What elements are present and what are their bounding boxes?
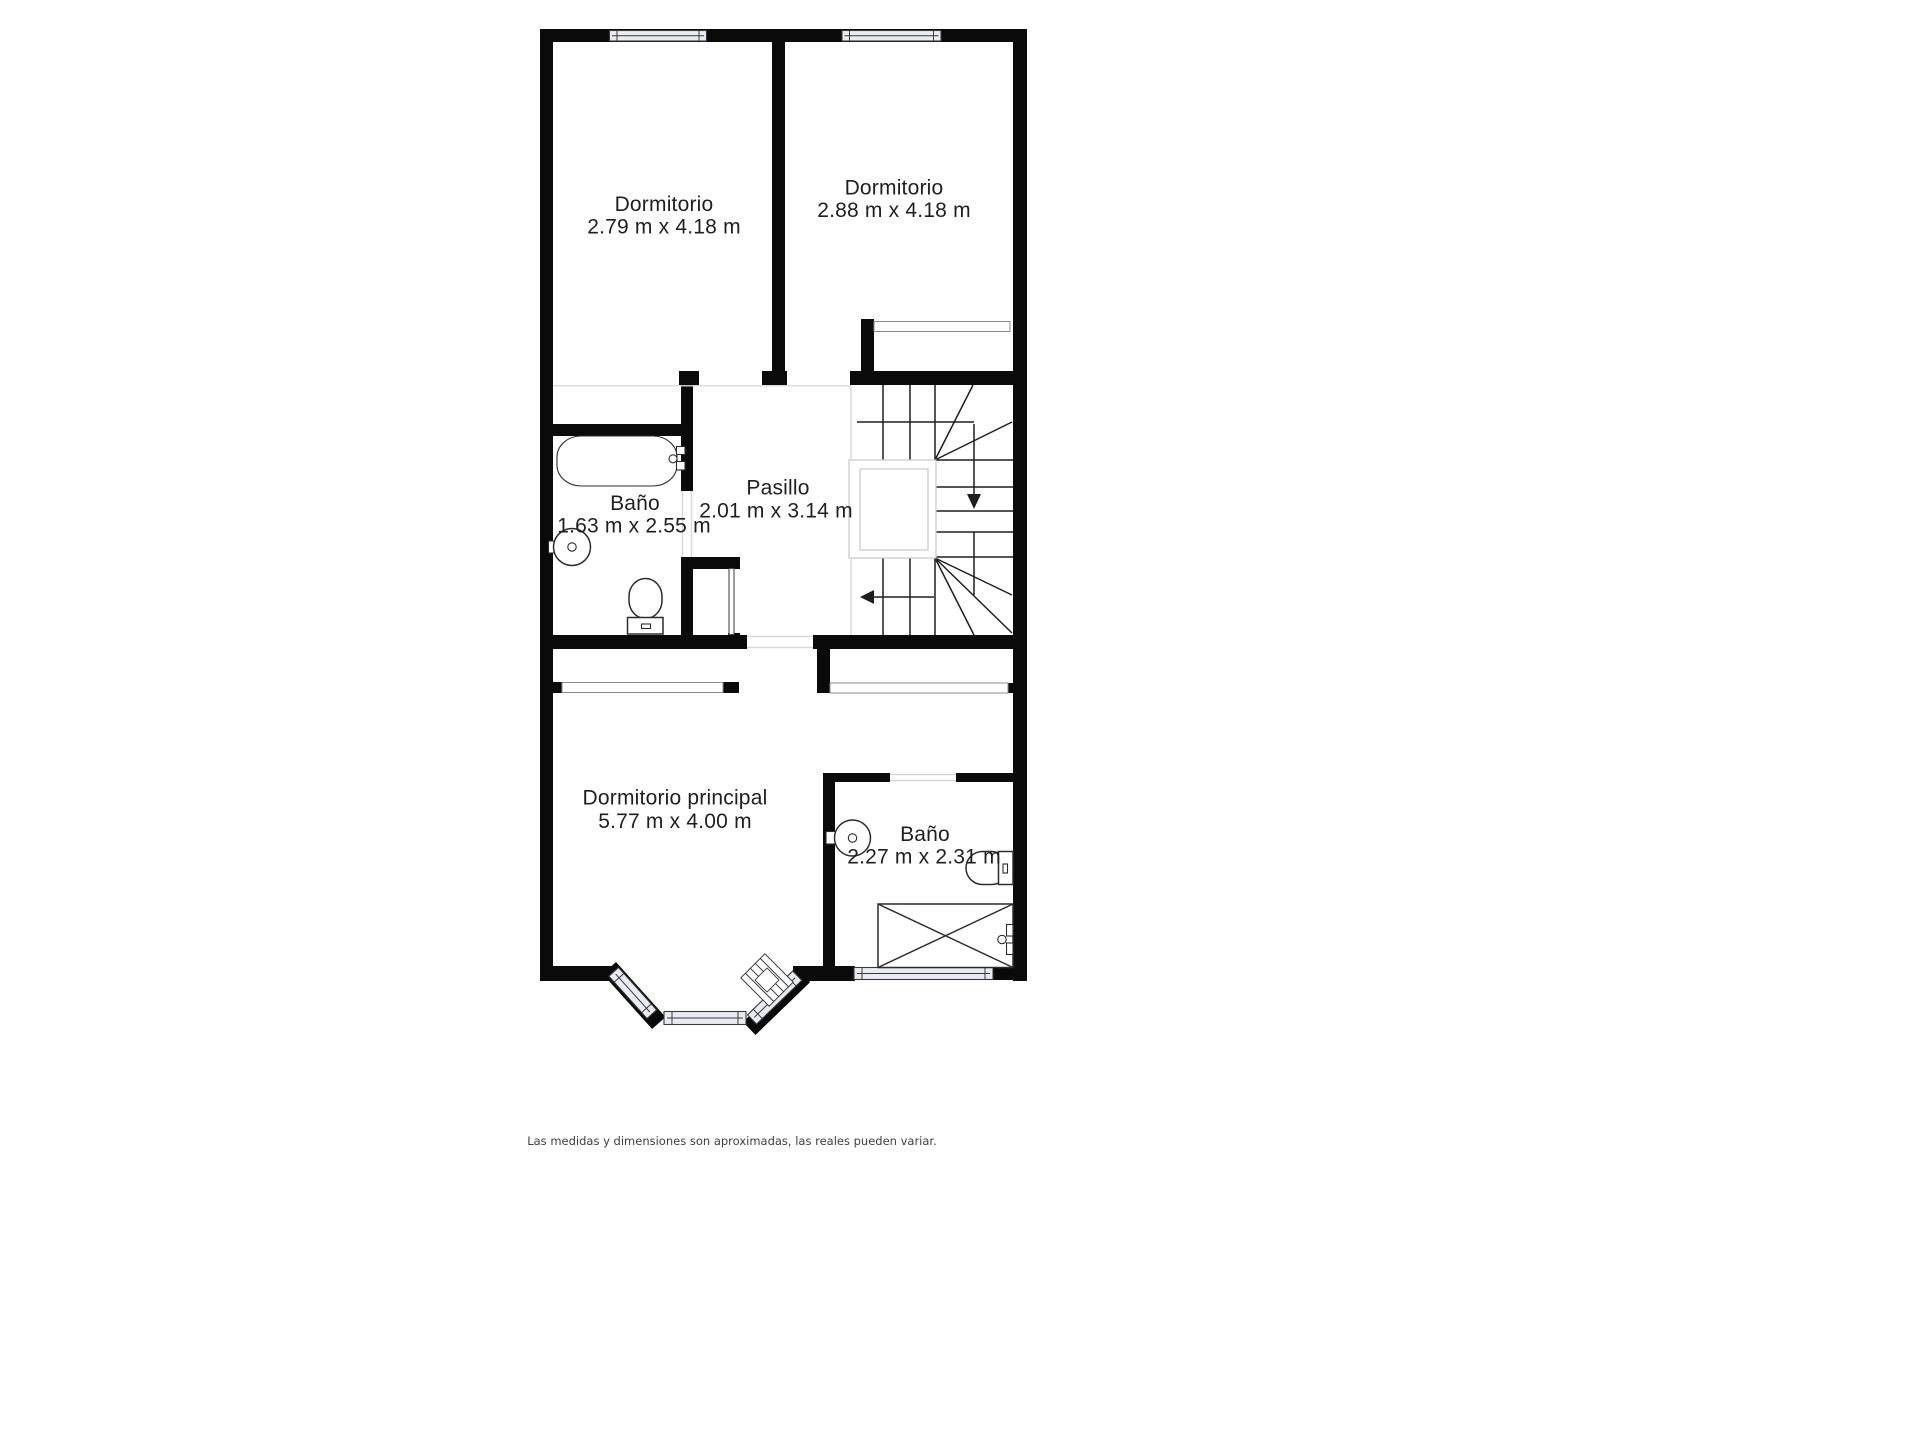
wall-segment [823, 773, 890, 782]
window [854, 968, 993, 980]
wall-segment [681, 372, 693, 491]
wardrobe-front [874, 322, 1010, 332]
disclaimer-text: Las medidas y dimensiones son aproximada… [527, 1134, 937, 1148]
window [610, 31, 707, 42]
room-label-pasillo: Pasillo 2.01 m x 3.14 m [699, 477, 853, 523]
wall-segment [813, 635, 1013, 649]
wall-segment [823, 773, 835, 980]
room-name: Dormitorio [845, 177, 944, 200]
room-dims: 5.77 m x 4.00 m [598, 810, 752, 833]
wall-segment [956, 773, 1013, 782]
bay-window-left [609, 968, 657, 1019]
room-label-dormitorio-principal: Dormitorio principal 5.77 m x 4.00 m [583, 787, 768, 834]
room-name: Dormitorio [615, 193, 714, 216]
floor-plan-page: Dormitorio 2.79 m x 4.18 m Dormitorio 2.… [0, 0, 1920, 1440]
bay-window-center [664, 1012, 746, 1025]
wall-segment [762, 371, 787, 385]
wall-segment [850, 371, 1013, 385]
wall-segment [540, 29, 553, 981]
room-dims: 2.79 m x 4.18 m [587, 216, 741, 239]
stairwell-void [849, 460, 936, 558]
wall-segment [861, 319, 874, 376]
wardrobe-front [562, 683, 723, 693]
room-dims: 2.88 m x 4.18 m [817, 199, 971, 222]
wall-segment [772, 42, 785, 372]
wall-segment [992, 967, 1027, 980]
room-name: Dormitorio principal [583, 787, 768, 810]
room-label-banio-1: Baño 1.63 m x 2.55 m [557, 492, 711, 538]
room-label-banio-2: Baño 2.27 m x 2.31 m [847, 823, 1001, 869]
stair-direction-arrow-down [967, 424, 981, 509]
room-label-dormitorio-1: Dormitorio 2.79 m x 4.18 m [587, 193, 741, 239]
room-name: Pasillo [746, 477, 809, 500]
room-name: Baño [610, 492, 660, 515]
wall-segment [681, 557, 740, 569]
wall-segment [1013, 29, 1027, 981]
toilet-icon [628, 579, 664, 635]
wall-segment [540, 424, 682, 436]
bathtub-icon [557, 436, 685, 486]
room-dims: 2.01 m x 3.14 m [699, 500, 853, 523]
wall-segment [723, 682, 739, 693]
wall-segment [817, 648, 830, 693]
door-leaf [729, 569, 734, 635]
room-dims: 2.27 m x 2.31 m [847, 846, 1001, 869]
room-label-dormitorio-2: Dormitorio 2.88 m x 4.18 m [817, 177, 971, 223]
room-name: Baño [900, 823, 950, 846]
staircase [849, 385, 1013, 635]
wardrobe-front [830, 683, 1008, 693]
wall-segment [550, 682, 562, 693]
room-dims: 1.63 m x 2.55 m [557, 515, 711, 538]
window [842, 31, 941, 42]
shower-icon [878, 904, 1013, 968]
floor-plan: Dormitorio 2.79 m x 4.18 m Dormitorio 2.… [0, 0, 1920, 1440]
wall-segment [540, 635, 747, 649]
wall-segment [1008, 683, 1013, 693]
stair-direction-arrow-left [860, 590, 934, 604]
